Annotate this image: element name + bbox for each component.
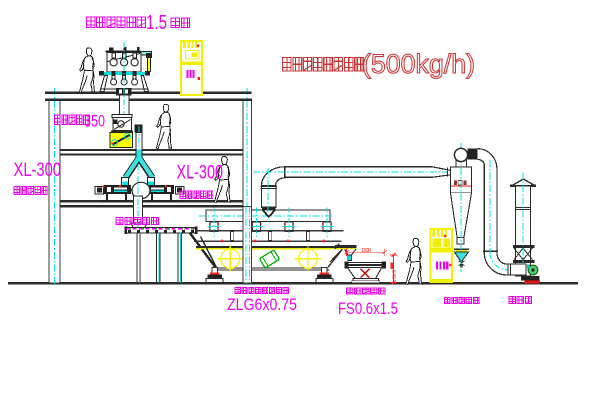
svg-text:ZLG6x0.75: ZLG6x0.75: [227, 296, 297, 314]
svg-text:XL-300: XL-300: [177, 162, 224, 183]
svg-text:XL-300: XL-300: [14, 160, 62, 181]
svg-text:(500kg/h): (500kg/h): [362, 49, 475, 79]
svg-text:540: 540: [390, 270, 396, 279]
svg-text:1.5: 1.5: [146, 12, 167, 34]
svg-text:1500: 1500: [361, 248, 371, 254]
svg-text:FS0.6x1.5: FS0.6x1.5: [338, 299, 398, 318]
